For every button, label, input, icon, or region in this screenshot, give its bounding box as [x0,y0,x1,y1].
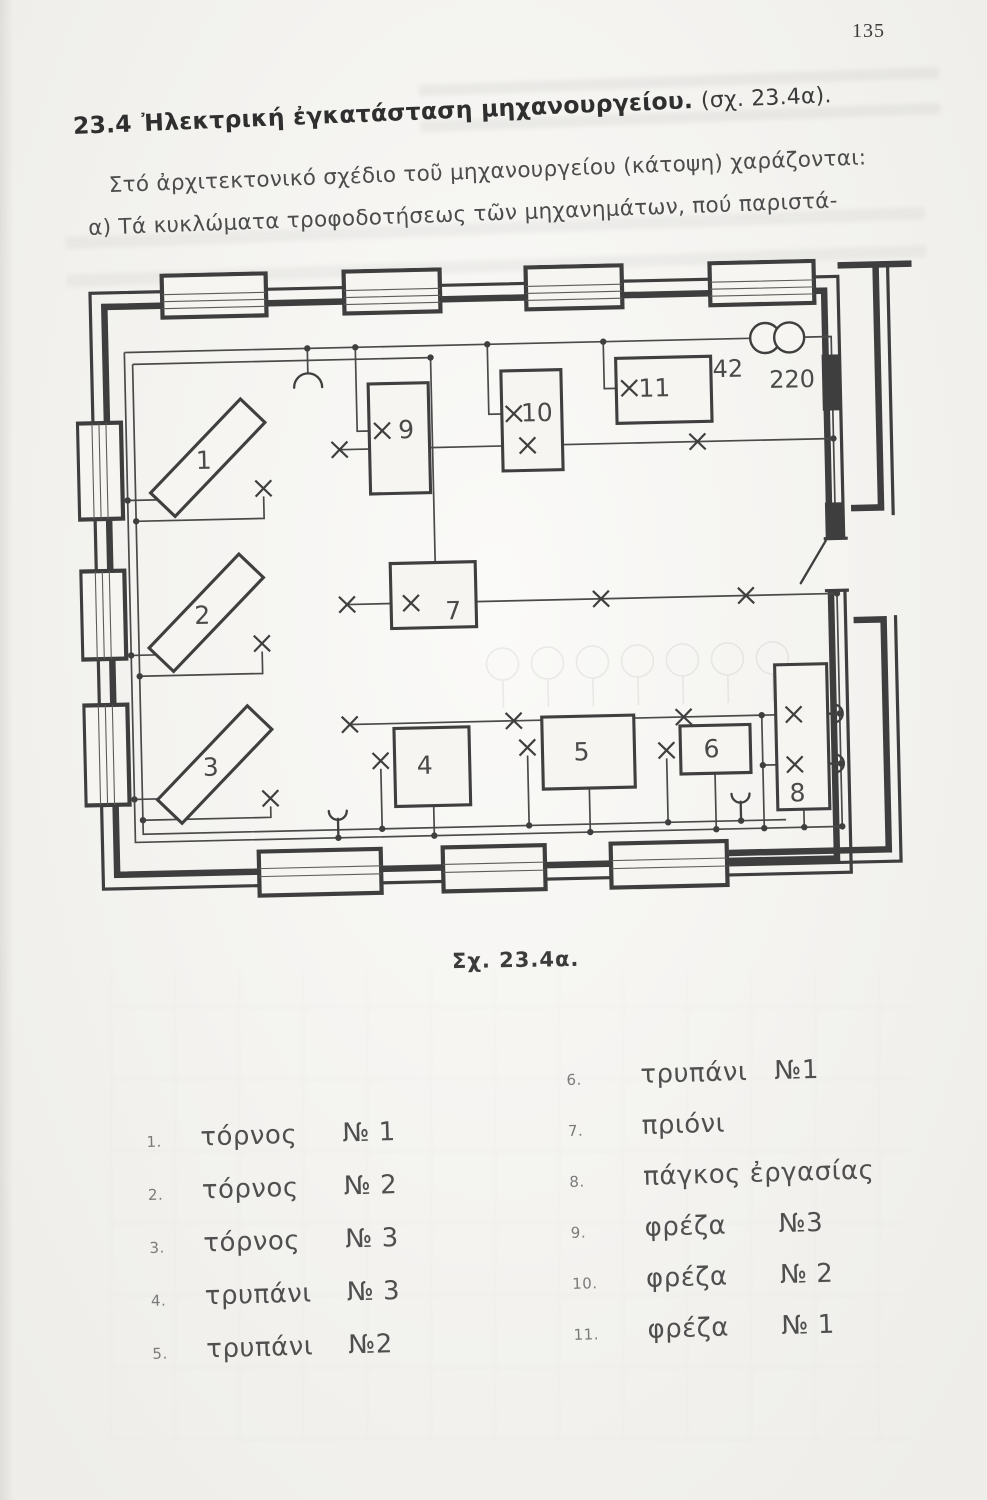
floor-plan-figure: 42 220 1 2 3 4 5 6 7 8 9 10 11 [73,256,935,939]
legend-item: 11.φρέζα№ 1 [573,1306,974,1368]
transformer-primary-voltage: 42 [712,355,743,384]
legend-item-name: φρέζα [646,1260,781,1294]
legend-item-number: 7. [568,1120,642,1140]
legend-item-name: πριόνι [641,1107,776,1141]
legend-item: 5.τρυπάνι№2 [152,1326,513,1389]
intro-paragraph: Στό ἀρχιτεκτονικό σχέδιο τοῦ μηχανουργεί… [86,134,949,249]
legend-item-name: τρυπάνι [206,1330,349,1364]
legend-item-number: 1. [146,1131,200,1151]
window [526,265,623,309]
legend-item-name: φρέζα [644,1209,779,1243]
machine-label: 9 [398,415,415,444]
transformer-secondary-voltage: 220 [769,365,815,394]
machine-label: 8 [789,778,806,807]
door-opening [824,538,849,591]
legend-item-no: № 1 [781,1310,835,1341]
section-number: 23.4 [72,110,132,140]
machine-label: 1 [196,446,213,475]
machine-label: 3 [202,753,219,782]
figure-caption: Σχ. 23.4α. [452,947,580,973]
transformer-symbol: 42 220 [712,322,816,395]
window [259,849,382,896]
legend-item-no: №1 [774,1055,819,1086]
machine-legend-left: 1.τόρνος№ 1 2.τόρνος№ 2 3.τόρνος№ 3 4.τρ… [146,1114,513,1389]
machine-label: 6 [703,734,720,763]
window [443,845,546,891]
corridor-wall [846,264,882,508]
section-title: Ἠλεκτρική ἐγκατάσταση μηχανουργείου. [141,86,693,137]
bleedthrough-circles [486,642,789,709]
window [709,261,814,305]
corridor-wall [888,264,894,515]
legend-item-no: №2 [348,1329,393,1360]
door-leaf [800,541,827,584]
machine-label: 4 [416,751,433,780]
legend-item-no: № 2 [343,1170,397,1201]
legend-item-name: τρυπάνι [204,1277,347,1311]
legend-item-name: πάγκος ἐργασίας [643,1155,889,1192]
legend-item-name: τόρνος [200,1119,343,1153]
legend-item-name: φρέζα [647,1311,782,1345]
section-heading: 23.4Ἠλεκτρική ἐγκατάσταση μηχανουργείου.… [72,80,832,140]
legend-item-name: τόρνος [203,1224,346,1258]
machine-label: 7 [445,596,462,625]
legend-item-name: τρυπάνι [640,1056,775,1090]
machines [143,354,830,824]
machine-label: 5 [573,737,590,766]
door-post [825,502,844,538]
page-number: 135 [852,20,885,43]
legend-item-number: 9. [571,1222,645,1242]
legend-item-number: 11. [573,1324,647,1344]
legend-item-name: τόρνος [201,1172,344,1206]
legend-item-number: 5. [152,1343,206,1363]
socket-icon [329,811,348,838]
legend-item-number: 8. [569,1171,643,1191]
figure-reference: (σχ. 23.4α). [701,83,833,113]
legend-item-number: 4. [151,1290,205,1310]
legend-item-no: № 3 [345,1223,399,1254]
window [344,269,441,313]
legend-item-number: 2. [148,1184,202,1204]
socket-symbols [329,793,751,838]
legend-item-no: № 1 [342,1117,396,1148]
legend-item-no: №3 [778,1208,823,1239]
window [162,273,267,317]
machine-label: 10 [521,398,553,428]
ceiling-lamp-icon [294,373,322,388]
window [611,841,728,888]
legend-item-number: 3. [149,1237,203,1257]
legend-item-no: № 3 [346,1276,400,1307]
scanned-book-page: 135 23.4Ἠλεκτρική ἐγκατάσταση μηχανουργε… [0,0,987,1500]
panel-board [822,354,841,410]
legend-item-no: № 2 [780,1259,834,1290]
machine-label: 11 [638,373,670,403]
legend-item-number: 6. [566,1069,640,1089]
legend-item-number: 10. [572,1273,646,1293]
machine-label: 2 [194,601,211,630]
socket-icon [732,793,751,820]
machine-legend-right: 6.τρυπάνι№1 7.πριόνι 8.πάγκος ἐργασίας 9… [566,1051,974,1368]
